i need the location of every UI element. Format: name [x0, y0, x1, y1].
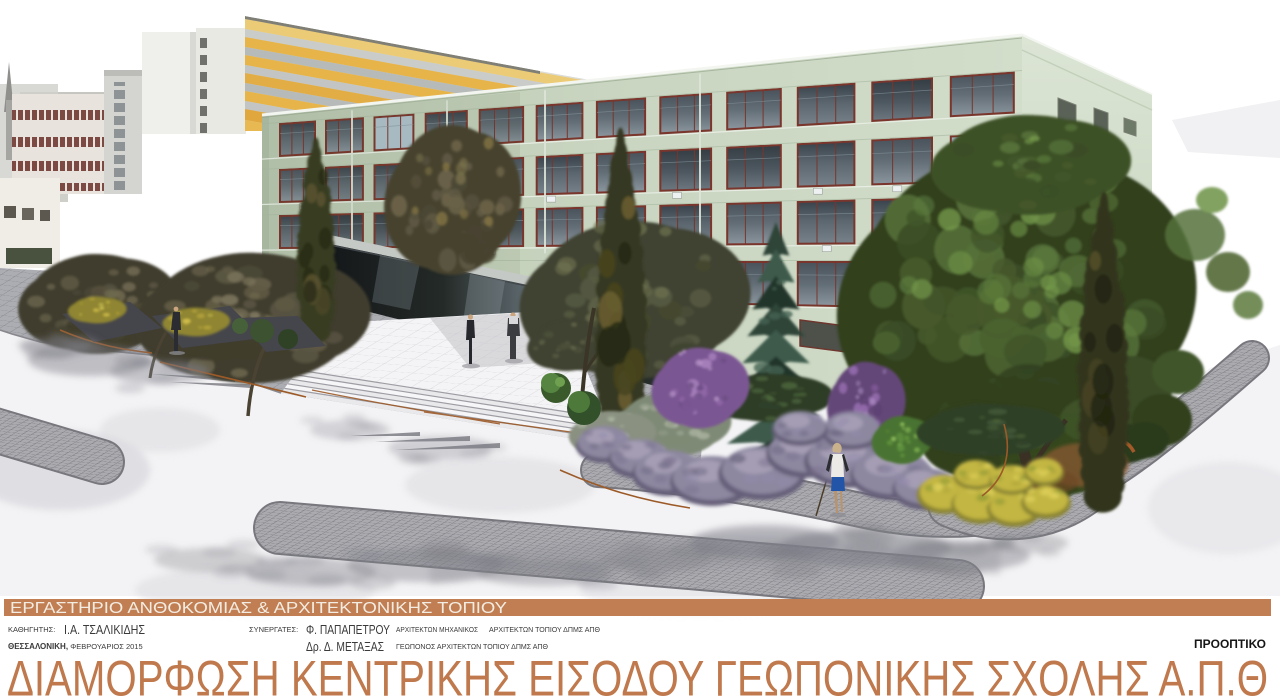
- svg-text:ΣΥΝΕΡΓΑΤΕΣ:: ΣΥΝΕΡΓΑΤΕΣ:: [249, 625, 298, 634]
- svg-text:ΑΡΧΙΤΕΚΤΩΝ ΜΗΧΑΝΙΚΟΣ: ΑΡΧΙΤΕΚΤΩΝ ΜΗΧΑΝΙΚΟΣ: [396, 625, 478, 634]
- svg-text:ΚΑΘΗΓΗΤΗΣ:: ΚΑΘΗΓΗΤΗΣ:: [8, 625, 55, 634]
- svg-text:ΑΡΧΙΤΕΚΤΩΝ ΤΟΠΙΟΥ ΔΠΜΣ ΑΠΘ: ΑΡΧΙΤΕΚΤΩΝ ΤΟΠΙΟΥ ΔΠΜΣ ΑΠΘ: [489, 625, 600, 634]
- svg-text:Φ. ΠΑΠΑΠΕΤΡΟΥ: Φ. ΠΑΠΑΠΕΤΡΟΥ: [306, 623, 391, 637]
- svg-text:ΔΙΑΜΟΡΦΩΣΗ ΚΕΝΤΡΙΚΗΣ ΕΙΣΟΔΟΥ Γ: ΔΙΑΜΟΡΦΩΣΗ ΚΕΝΤΡΙΚΗΣ ΕΙΣΟΔΟΥ ΓΕΩΠΟΝΙΚΗΣ …: [7, 651, 1268, 698]
- svg-text:ΕΡΓΑΣΤΗΡΙΟ ΑΝΘΟΚΟΜΙΑΣ & ΑΡΧΙΤΕ: ΕΡΓΑΣΤΗΡΙΟ ΑΝΘΟΚΟΜΙΑΣ & ΑΡΧΙΤΕΚΤΟΝΙΚΗΣ Τ…: [10, 600, 507, 617]
- svg-text:Ι.Α. ΤΣΑΛΙΚΙΔΗΣ: Ι.Α. ΤΣΑΛΙΚΙΔΗΣ: [64, 623, 145, 637]
- svg-text:ΠΡΟΟΠΤΙΚΟ: ΠΡΟΟΠΤΙΚΟ: [1194, 639, 1266, 651]
